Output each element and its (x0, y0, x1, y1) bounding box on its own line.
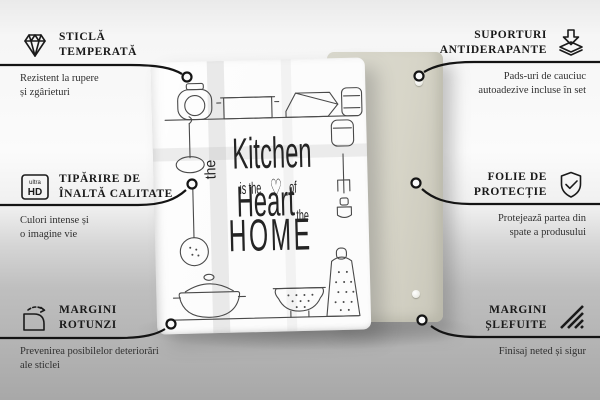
feature-title-line: TIPĂRIRE DE (59, 172, 173, 187)
feature-desc-line: ale sticlei (20, 359, 159, 373)
feature-title-line: ANTIDERAPANTE (440, 43, 547, 58)
ultra-label: ultra (29, 180, 41, 186)
callout-dot (183, 73, 192, 82)
feature-desc-line: Pads-uri de cauciuc (440, 70, 586, 84)
feature-title-line: MARGINI (59, 303, 117, 318)
feature-desc-line: o imagine vie (20, 228, 173, 242)
feature-desc-line: autoadezive incluse în set (440, 84, 586, 98)
callout-dot (418, 316, 427, 325)
feature-title-line: PROTECȚIE (474, 185, 547, 200)
feature-desc-line: Protejează partea din (474, 212, 586, 226)
feature-title-line: ȘLEFUITE (485, 318, 547, 333)
feature-desc-line: Culori intense și (20, 214, 173, 228)
polished-edge-icon (556, 303, 586, 333)
pads-icon (556, 28, 586, 58)
feature-title-line: TEMPERATĂ (59, 45, 137, 60)
feature-title-line: FOLIE DE (474, 170, 547, 185)
rounded-corner-icon (20, 303, 50, 333)
feature-title-line: ROTUNZI (59, 318, 117, 333)
feature-polished-edges: MARGINI ȘLEFUITE Finisaj neted și sigur (485, 301, 586, 359)
feature-desc-line: Finisaj neted și sigur (485, 345, 586, 359)
product-infographic: the Kitchen is the ♡ of Heart the HOME (0, 0, 600, 400)
feature-desc-line: Rezistent la rupere (20, 72, 137, 86)
callout-dot (188, 180, 197, 189)
feature-desc-line: spate a produsului (474, 226, 586, 240)
feature-protective-film: FOLIE DE PROTECȚIE Protejează partea din… (474, 168, 586, 239)
feature-title-line: ÎNALTĂ CALITATE (59, 187, 173, 202)
feature-title-line: MARGINI (485, 303, 547, 318)
callout-dot (415, 72, 424, 81)
feature-title-line: STICLĂ (59, 30, 137, 45)
shield-check-icon (556, 170, 586, 200)
hd-label: HD (28, 187, 42, 198)
feature-desc-line: și zgârieturi (20, 86, 137, 100)
callout-dot (167, 320, 176, 329)
feature-desc-line: Prevenirea posibilelor deteriorări (20, 345, 159, 359)
feature-title-line: SUPORTURI (440, 28, 547, 43)
callout-dot (412, 179, 421, 188)
diamond-icon (20, 31, 50, 59)
feature-tempered-glass: STICLĂ TEMPERATĂ Rezistent la rupere și … (20, 28, 137, 99)
feature-anti-slip-pads: SUPORTURI ANTIDERAPANTE Pads-uri de cauc… (440, 26, 586, 97)
feature-rounded-corners: MARGINI ROTUNZI Prevenirea posibilelor d… (20, 301, 159, 372)
ultra-hd-icon: ultra HD (20, 173, 50, 201)
feature-hd-print: ultra HD TIPĂRIRE DE ÎNALTĂ CALITATE Cul… (20, 170, 173, 241)
